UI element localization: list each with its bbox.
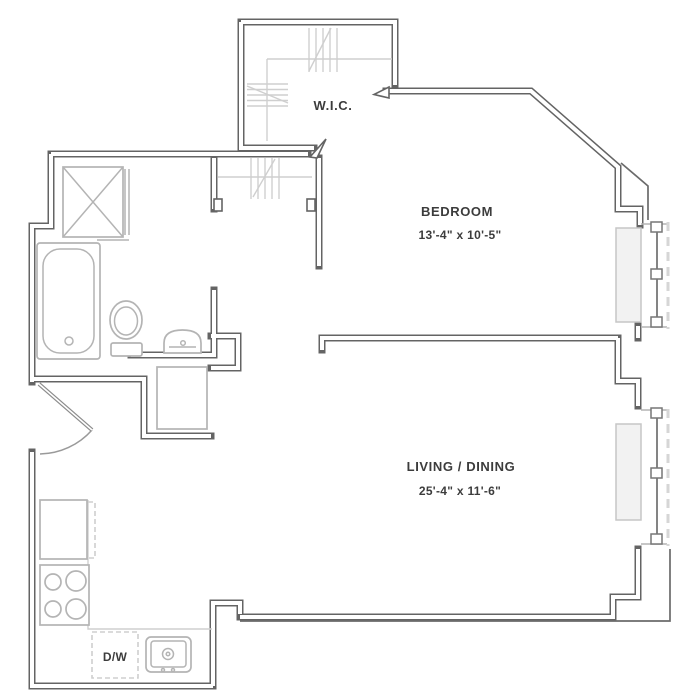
entry-door bbox=[39, 384, 92, 454]
wall-wic-left-bottom bbox=[241, 22, 314, 148]
living-window bbox=[616, 408, 668, 546]
jamb-left bbox=[214, 199, 222, 211]
labels: W.I.C. BEDROOM 13'-4" x 10'-5" LIVING / … bbox=[314, 98, 516, 498]
living-radiator bbox=[616, 424, 641, 520]
counter-edge bbox=[88, 500, 212, 629]
range bbox=[40, 565, 89, 625]
bedroom-window bbox=[616, 222, 668, 329]
wic-label: W.I.C. bbox=[314, 98, 353, 113]
bathtub bbox=[37, 243, 100, 359]
bedroom-dimensions: 13'-4" x 10'-5" bbox=[419, 228, 502, 242]
hall-closet-rod bbox=[218, 158, 312, 199]
entry-door-swing-arc bbox=[40, 430, 92, 454]
dishwasher-label: D/W bbox=[103, 650, 128, 664]
shower bbox=[63, 167, 129, 240]
jamb-right bbox=[307, 199, 315, 211]
wall-living-south bbox=[240, 549, 638, 617]
floor-plan-svg: D/W W.I.C. BEDROOM 13'-4" x 10'-5" LIVIN… bbox=[0, 0, 686, 698]
bedroom-radiator bbox=[616, 228, 641, 322]
shaft bbox=[157, 367, 207, 429]
wic-closet-rods bbox=[247, 28, 392, 141]
living-dining-dimensions: 25'-4" x 11'-6" bbox=[419, 484, 501, 498]
dishwasher: D/W bbox=[92, 632, 138, 678]
living-dining-label: LIVING / DINING bbox=[407, 459, 516, 474]
kitchen: D/W bbox=[40, 500, 212, 678]
refrigerator bbox=[40, 500, 95, 559]
toilet bbox=[110, 301, 142, 356]
kitchen-sink bbox=[146, 637, 191, 672]
bedroom-label: BEDROOM bbox=[421, 204, 493, 219]
wall-cap-wic-door bbox=[374, 87, 389, 98]
bathroom-sink bbox=[164, 330, 201, 353]
floor-plan-canvas: D/W W.I.C. BEDROOM 13'-4" x 10'-5" LIVIN… bbox=[0, 0, 686, 698]
wall-outer-southeast bbox=[240, 549, 670, 621]
